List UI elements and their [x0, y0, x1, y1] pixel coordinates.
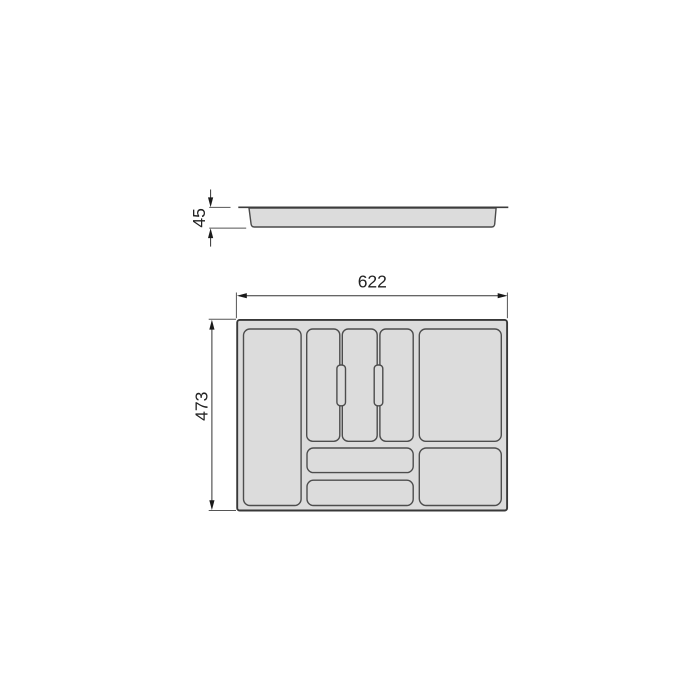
svg-text:473: 473: [191, 392, 211, 421]
svg-text:45: 45: [189, 208, 209, 227]
svg-text:622: 622: [358, 271, 387, 291]
